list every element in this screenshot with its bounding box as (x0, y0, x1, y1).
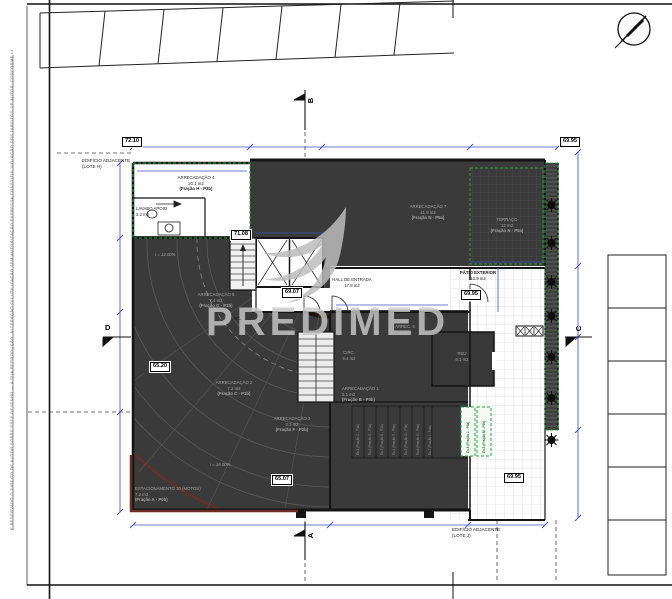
stall-label: Es.2 (Fração D - P2a) (368, 424, 372, 455)
adjacent-lot-h-label: EDIFÍCIO ADJACENTE (LOTE H) (82, 158, 130, 170)
adjacent-lot-j-label: EDIFÍCIO ADJACENTE (LOTE J) (452, 527, 500, 539)
room-label-hall: HALL DE ENTRADA17.8 m2 (322, 277, 382, 288)
section-marker-c: C (574, 326, 583, 331)
floor-plan-page: PREDIMED É RESERVADO O DIREITO DE AUTOR … (0, 0, 672, 599)
elevation-label: 69.95 (504, 473, 524, 483)
room-label-arrecadacao-3: ARRECADAÇÃO 33.3 m2(Fração F - P2b) (264, 416, 320, 433)
room-label-patio: PÁTIO EXTERIOR13.9 m2 (452, 270, 504, 281)
stall-label: Es.9 (Fração M - P5b) (482, 421, 486, 453)
room-label-arrecadacao-5: ARRECADAÇÃO 57.4 m2(Fração G - P1b) (188, 292, 244, 309)
room-label-lavabo: LAVABO APOIO3.2 m2 (136, 206, 167, 217)
room-label-circ: CIRC.9.4 m2 (336, 350, 362, 361)
elevation-label: 72.10 (122, 137, 142, 147)
section-marker-b: B (306, 98, 315, 103)
room-label-estacionamento-10: ESTACIONAMENTO 10 (MOTOS)7.2 m2(Fração A… (135, 486, 201, 503)
slope-label-upper: i = 12.00% (155, 252, 175, 258)
stall-label: Es.1 (Fração C - P1b) (356, 424, 360, 455)
slope-label-lower: i = 16.00% (210, 462, 230, 468)
margin-copyright-note: É RESERVADO O DIREITO DE AUTOR SOBRE EST… (9, 50, 19, 530)
pier (424, 510, 434, 518)
elevation-label: 65.07 (272, 475, 292, 485)
elevation-label: 71.08 (231, 230, 251, 240)
room-label-arrecadacao-6: ARREC. 65.2 m2 (388, 324, 422, 335)
room-label-terraco: TERRAÇO12 m2(Fração N - P5a) (484, 217, 530, 234)
stall-label: Es.4 (Fração F - P3a) (392, 424, 396, 455)
room-label-rsu: RSU9.1 m2 (448, 351, 476, 362)
stall-label: Es.3 (Fração E - P2b) (380, 424, 384, 455)
room-label-arrecadacao-7: ARRECADAÇÃO 741.9 m2(Fração N - P5a) (398, 204, 458, 221)
stall-label: Es.8 (Fração L - P5a) (466, 422, 470, 453)
stall-label: Es.7 (Fração I - P4b) (428, 425, 432, 455)
section-marker-a: A (306, 533, 315, 538)
rsu-door-gap (492, 352, 496, 370)
elevation-label: 69.95 (461, 290, 481, 300)
room-label-arrecadacao-1: ARRECADAÇÃO 15.1 m2(Fração B - P0b) (342, 386, 398, 403)
adjacent-lot-j-line2: (LOTE J) (452, 533, 500, 539)
room-label-arrecadacao-4: ARRECADAÇÃO 420.1 m2(Fração H - P3b) (163, 175, 229, 192)
adjacent-lot-h-line2: (LOTE H) (82, 164, 130, 170)
parking-column-right (608, 255, 666, 575)
section-marker-d: D (105, 323, 110, 332)
room-label-wc: WC. (233, 316, 241, 322)
north-compass-icon (615, 13, 650, 48)
room-label-arrecadacao-2: ARRECADAÇÃO 27.2 m2(Fração C - P1b) (206, 380, 262, 397)
elevation-label: 65.20 (150, 362, 170, 372)
stall-label: Es.5 (Fração G - P3b) (404, 424, 408, 455)
parking-row-top (40, 1, 454, 68)
stall-label: Es.6 (Fração H - P4a) (416, 424, 420, 455)
elevation-label: 69.95 (560, 137, 580, 147)
elevation-label: 69.07 (282, 288, 302, 298)
stair-upper-icon (230, 238, 256, 290)
